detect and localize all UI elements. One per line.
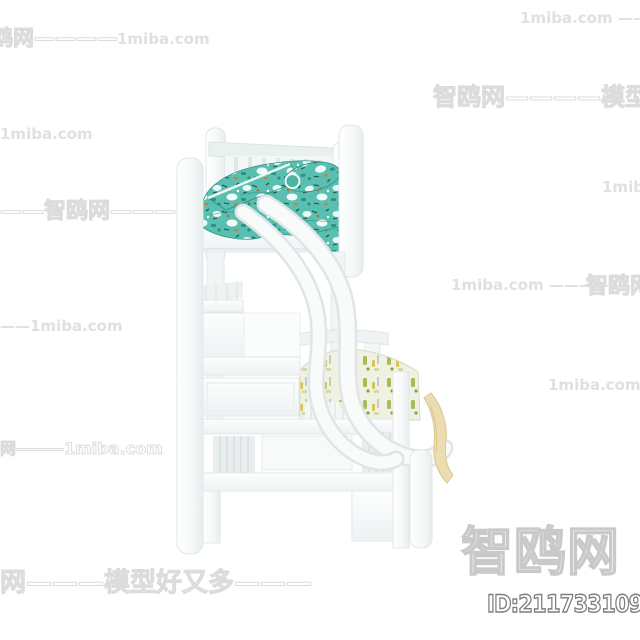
product-image: 1miba.com ———————鸥网————1miba.com智鸥网————模… (0, 0, 640, 640)
site-logo: 智鸥网 (461, 524, 620, 584)
stair-storage (197, 281, 300, 416)
slide-foot (410, 450, 432, 548)
left-front-post (177, 158, 203, 554)
leg (203, 491, 220, 543)
leg (352, 491, 394, 541)
model-id: ID:211733109 (487, 592, 640, 616)
